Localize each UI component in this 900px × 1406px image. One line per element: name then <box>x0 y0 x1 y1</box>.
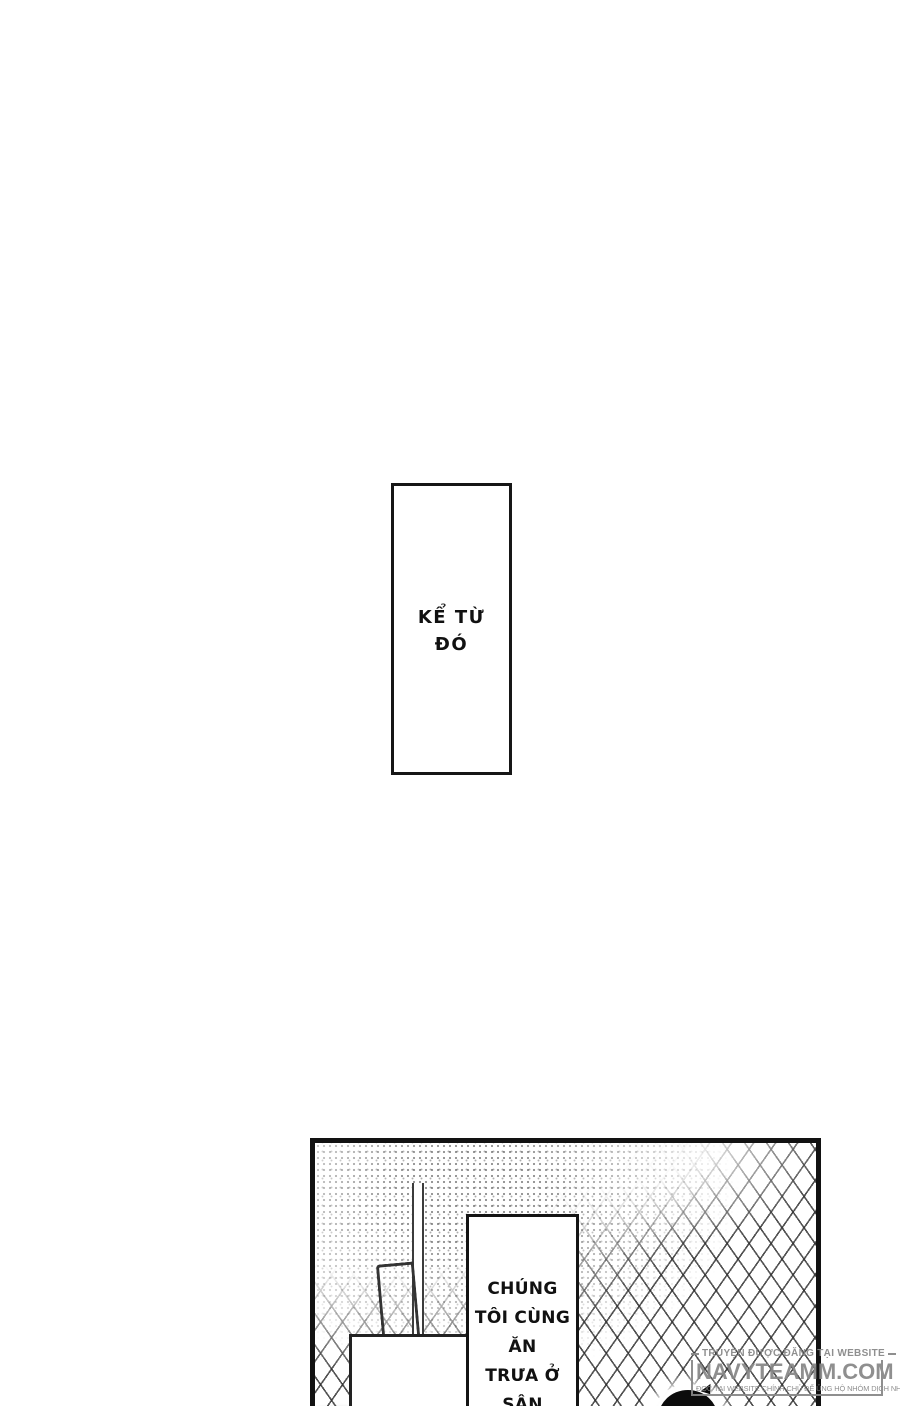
watermark-tagline: TRUYỆN ĐƯỢC ĐĂNG TẠI WEBSITE <box>691 1348 883 1359</box>
watermark-note: ĐỌC TẠI WEBSITE CHÍNH CHỦ ĐỂ ỦNG HỘ NHÓM… <box>696 1384 878 1393</box>
rooftop-wall-edge <box>349 1334 474 1406</box>
caption-line: TRƯA Ở SÂN <box>469 1362 576 1406</box>
narration-text: KỂ TỪ ĐÓ <box>394 604 509 658</box>
translator-watermark: TRUYỆN ĐƯỢC ĐĂNG TẠI WEBSITE NAVYTEAMM.C… <box>691 1348 883 1396</box>
watermark-tagline-text: TRUYỆN ĐƯỢC ĐĂNG TẠI WEBSITE <box>702 1348 885 1359</box>
watermark-frame: NAVYTEAMM.COM ĐỌC TẠI WEBSITE CHÍNH CHỦ … <box>691 1360 883 1396</box>
narration-box: CHÚNG TÔI CÙNG ĂN TRƯA Ở SÂN THƯỢNG. <box>466 1214 579 1406</box>
caption-line: CHÚNG <box>469 1275 576 1304</box>
watermark-dash-left <box>691 1353 699 1355</box>
bench-frame <box>376 1261 420 1339</box>
caption-line: TÔI CÙNG ĂN <box>469 1304 576 1362</box>
manga-page: KỂ TỪ ĐÓ CHÚNG TÔI CÙNG ĂN TRƯA Ở SÂN TH… <box>0 0 900 1406</box>
narration-line: KỂ TỪ <box>394 604 509 631</box>
manga-panel-since-then: KỂ TỪ ĐÓ <box>391 483 512 775</box>
watermark-dash-right <box>888 1353 896 1355</box>
narration-line: ĐÓ <box>394 631 509 658</box>
watermark-site-name: NAVYTEAMM.COM <box>696 1360 878 1383</box>
